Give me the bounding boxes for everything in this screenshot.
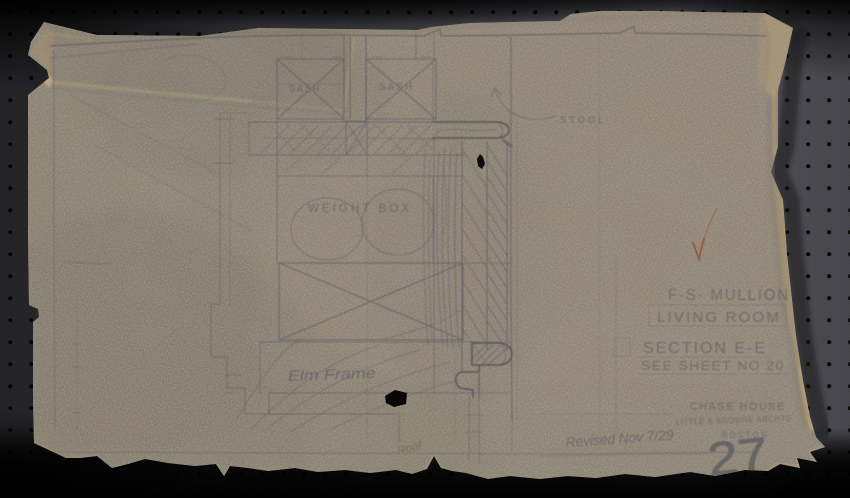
svg-text:LIVING ROOM: LIVING ROOM [657,309,781,326]
svg-text:CHASE HOUSE: CHASE HOUSE [690,401,786,413]
svg-text:F·S· MULLION: F·S· MULLION [668,287,790,304]
svg-text:SEE SHEET NO 20: SEE SHEET NO 20 [641,359,785,373]
svg-text:SECTION E-E: SECTION E-E [643,340,767,357]
svg-text:Elm Frame: Elm Frame [288,365,377,385]
svg-text:WEIGHT BOX: WEIGHT BOX [308,201,412,215]
svg-text:SASH: SASH [289,84,321,95]
svg-text:SASH: SASH [379,82,414,93]
